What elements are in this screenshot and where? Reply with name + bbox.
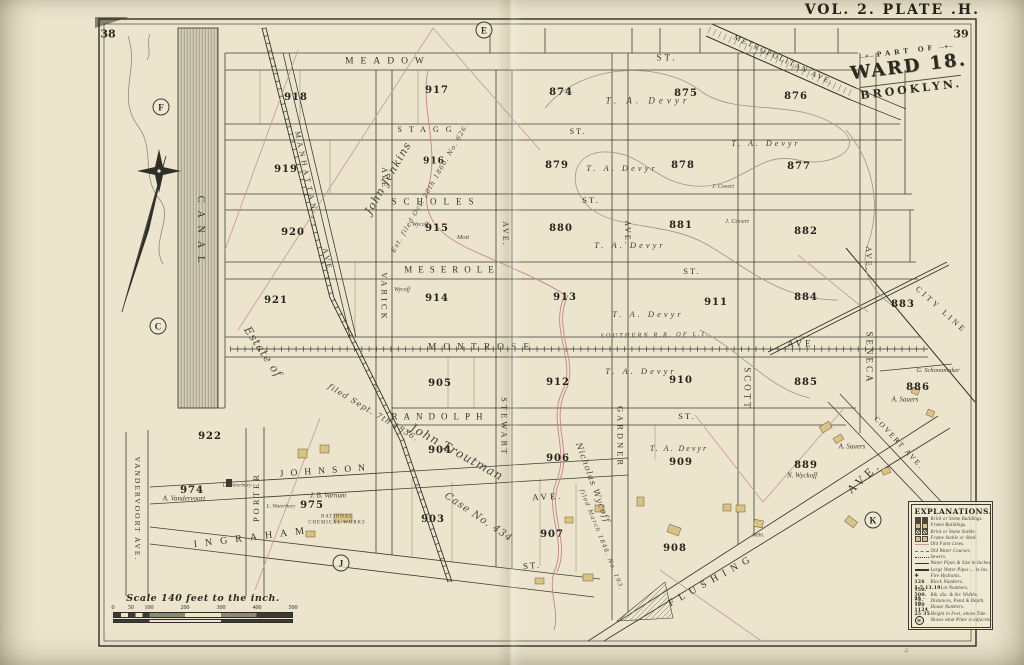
legend-label: Height in Feet, above Tide. [931, 612, 987, 617]
scale-label: Scale 140 feet to the inch. [113, 593, 293, 604]
owner-label: T. A. Devyr [612, 310, 683, 319]
block-number: 909 [669, 458, 693, 468]
block-number: 908 [663, 544, 687, 554]
block-number: 920 [281, 228, 305, 238]
block-number: 914 [425, 294, 449, 304]
scale-tick: 300 [217, 605, 226, 611]
street-label: AVE. [532, 492, 564, 503]
legend-title: EXPLANATIONS. [915, 507, 988, 516]
street-label: MESEROLE [404, 266, 500, 275]
works-label: CHEMICAL WORKS [308, 522, 365, 527]
scale-ticks: 050100200300400500 [113, 604, 293, 612]
plate-title: VOL. 2. PLATE .H. [805, 2, 980, 18]
plate-marker-e: E [476, 22, 493, 39]
tiny-label: L. Waterbury [267, 504, 296, 510]
street-label: PORTER [252, 472, 261, 522]
owner-label: G. Schoonmaker [916, 368, 959, 375]
block-number: 917 [425, 86, 449, 96]
legend-label: Old Water Courses. [931, 549, 972, 554]
legend-label: Brick or Stone Stable. [931, 530, 977, 535]
legend-label: Large Water Pipes ... in Ins. [931, 568, 989, 573]
explanations-legend: EXPLANATIONS. Brick or Stone Buildings.F… [908, 501, 993, 630]
street-label: AVE. [787, 340, 819, 349]
block-number: 879 [545, 161, 569, 171]
scale-bar: Scale 140 feet to the inch. 050100200300… [113, 593, 293, 623]
block-number: 906 [546, 454, 570, 464]
legend-label: Shows what Plate is adjacent. [931, 618, 993, 623]
block-number: 903 [421, 515, 445, 525]
block-number: 919 [274, 165, 298, 175]
street-label: GARDNER [616, 406, 625, 468]
street-label: STAGG [397, 126, 458, 134]
block-number: 911 [704, 298, 728, 308]
folio-left: 38 [100, 28, 115, 41]
legend-label: Brick or Stone Buildings. [931, 517, 983, 522]
street-label: ST. [656, 54, 677, 63]
block-number: 878 [671, 161, 695, 171]
legend-label: Frame Stable or Shed. [931, 536, 977, 541]
scale-tick: 500 [289, 605, 298, 611]
block-number: 884 [794, 293, 818, 303]
plate-marker-f: F [153, 99, 170, 116]
block-number: 912 [546, 378, 570, 388]
block-number: 922 [198, 432, 222, 442]
plate-marker-j: J [333, 555, 350, 572]
owner-label: J. B. Varnum [310, 493, 346, 500]
street-label: MONTROSE [428, 343, 536, 353]
scale-tick: 200 [181, 605, 190, 611]
block-number: 915 [425, 224, 449, 234]
legend-label: Fire Hydrants. [931, 574, 962, 579]
block-number: 918 [284, 93, 308, 103]
block-number: 876 [784, 92, 808, 102]
block-number: 886 [906, 383, 930, 393]
tiny-label: 3696. [752, 533, 764, 539]
owner-label: N. Wyckoff [787, 473, 817, 480]
street-label: VARICK [380, 272, 389, 322]
owner-label: T. A. Devyr [586, 164, 657, 173]
legend-symbol-brick [915, 517, 931, 523]
pencil-mark: 4 [904, 647, 908, 655]
block-number: 921 [264, 296, 288, 306]
street-label: ST. [523, 561, 542, 572]
legend-symbol-text: 126 [915, 580, 931, 585]
legend-symbol-farm [915, 544, 931, 545]
owner-label: T. A. Devyr [605, 367, 676, 376]
block-number: 905 [428, 379, 452, 389]
block-number: 910 [669, 376, 693, 386]
tiny-label: Wycoff [412, 222, 428, 228]
street-label: ST. [678, 412, 695, 421]
scale-strip [113, 612, 293, 618]
street-label: AVE. [501, 221, 509, 246]
legend-label: Block Numbers. [931, 580, 964, 585]
block-number: 907 [540, 530, 564, 540]
tiny-label: Mott [457, 235, 469, 242]
owner-label: A. Sauers [892, 397, 919, 404]
block-number: 874 [549, 88, 573, 98]
block-number: 889 [794, 461, 818, 471]
legend-symbol-frame [915, 523, 931, 529]
scale-strip-secondary [113, 619, 293, 623]
legend-label: Lot Numbers. [941, 586, 969, 591]
owner-label: T. A. Devyr [731, 140, 800, 148]
scale-tick: 50 [128, 605, 134, 611]
block-number: 882 [794, 227, 818, 237]
compass-rose [122, 149, 181, 312]
legend-symbol-plate: H [915, 616, 931, 625]
legend-row: HShows what Plate is adjacent. [915, 617, 988, 623]
block-number: 877 [787, 162, 811, 172]
street-label: ST. [570, 128, 587, 136]
block-number: 885 [794, 378, 818, 388]
street-label: AVE. [864, 246, 872, 271]
street-label: MEADOW [345, 57, 431, 67]
legend-label: House Numbers. [931, 605, 965, 610]
block-number: 881 [669, 221, 693, 231]
owner-label: A. Vandervoort [163, 496, 205, 503]
legend-label: Old Farm Lines. [931, 542, 965, 547]
street-label: ST. [683, 267, 700, 276]
block-number: 880 [549, 224, 573, 234]
street-label: STEWART [500, 397, 509, 457]
tiny-label: Wycoff [394, 287, 410, 293]
street-label: SCOTT [743, 367, 752, 411]
map-frame [99, 19, 976, 646]
railroad-diagonal [262, 28, 452, 582]
legend-symbol-frame-hatch [915, 536, 931, 542]
tiny-label: J. Covert [725, 219, 749, 226]
owner-label: T. A. Devyr [594, 241, 665, 250]
owner-label: A. Sauers [839, 444, 866, 451]
street-label: SENECA [865, 331, 874, 384]
scale-tick: 100 [145, 605, 154, 611]
atlas-scan: 38 39 VOL. 2. PLATE .H. PART OF WARD 18.… [0, 0, 1024, 665]
street-label: CANAL [195, 196, 205, 270]
farm-lines [225, 28, 868, 640]
street-label: RANDOLPH [391, 413, 488, 422]
legend-symbol-sewer [915, 557, 931, 558]
legend-symbol-hydrant: ✚ [915, 573, 931, 579]
block-number: 975 [300, 501, 324, 511]
scale-tick: 0 [112, 605, 115, 611]
block-number: 913 [553, 293, 577, 303]
street-label: SCHOLES [391, 198, 480, 207]
legend-label: Water Pipes & Size in Inches. [931, 561, 992, 566]
legend-symbol-pipe [915, 563, 931, 564]
legend-symbol-water [915, 551, 931, 552]
tiny-label: J. Covert [712, 184, 734, 190]
legend-label: Blk. dia. & Str. Widths. [931, 593, 979, 598]
plate-marker-c: C [150, 318, 167, 335]
street-label: VANDERVOORT AVE. [133, 457, 141, 562]
tiny-label: L. Waterbury [223, 483, 252, 489]
legend-symbol-brick-hatch [915, 529, 931, 535]
street-label: ST. [582, 196, 599, 205]
plate-marker-k: K [865, 512, 882, 529]
legend-row: Frame Stable or Shed. [915, 535, 988, 541]
owner-label: T. A. Devyr [650, 445, 708, 453]
block-number: 883 [891, 300, 915, 310]
scale-tick: 400 [253, 605, 262, 611]
legend-label: Distances, Pond & Depth. [931, 599, 985, 604]
legend-label: Sewers. [931, 555, 947, 560]
legend-row: Brick or Stone Buildings. [915, 517, 988, 523]
pond [617, 582, 673, 621]
owner-label: T. A. Devyr [606, 97, 691, 106]
legend-label: Frame Buildings. [931, 523, 967, 528]
legend-symbol-bigpipe [915, 569, 931, 571]
